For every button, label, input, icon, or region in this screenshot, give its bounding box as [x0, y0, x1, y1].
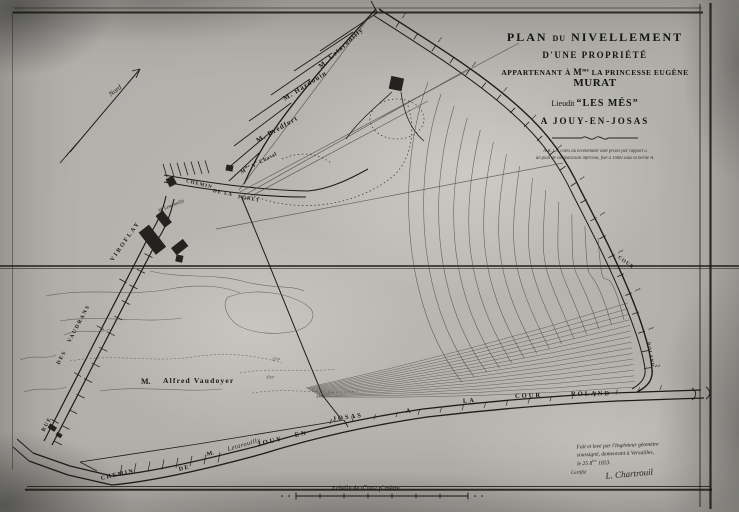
title-block: PLAN DU NIVELLEMENT D'UNE PROPRIÉTÉ APPA… [486, 30, 704, 162]
title-line-5: A JOUY-EN-JOSAS [486, 116, 704, 126]
title-line-1: PLAN DU NIVELLEMENT [486, 30, 704, 45]
scale-bar [281, 493, 483, 500]
bottom-road-word-la: LA [463, 398, 476, 405]
owner-vaudoyer-prefix: M. [141, 378, 151, 386]
scale-label: Echelle de 0m002 pr mètre [332, 484, 400, 493]
owner-vaudoyer-name: Alfred Vaudoyer [163, 377, 234, 385]
title-divider-ornament [550, 133, 640, 143]
title-line-4: Lieudit “LES MÉS” [486, 98, 704, 109]
title-note-line-1: N.B. Les côtes du nivellement sont prise… [486, 148, 704, 155]
north-arrow [60, 69, 140, 163]
photographed-survey-plan: PLAN DU NIVELLEMENT D'UNE PROPRIÉTÉ APPA… [0, 0, 739, 512]
bottom-road-word-a: A [406, 408, 413, 415]
slope-hatch-fan [306, 303, 636, 397]
signature-left-note: Certifié [571, 470, 586, 476]
title-line-2: D'UNE PROPRIÉTÉ [486, 50, 704, 60]
title-line-3: APPARTENANT À Mme LA PRINCESSE EUGÈNE MU… [486, 67, 704, 89]
frontage-comb-ticks [52, 160, 220, 475]
title-note-line-2: un plan de comparaison inférieur, fixé à… [486, 155, 704, 162]
surveyor-signature-block: Fait et levé par l'Ingénieur géomètre so… [576, 442, 659, 481]
bottom-road-word-roland: ROLAND [571, 391, 611, 398]
contour-elevation-label: 34m [316, 394, 324, 399]
bottom-road-word-cour: COUR [515, 393, 542, 400]
